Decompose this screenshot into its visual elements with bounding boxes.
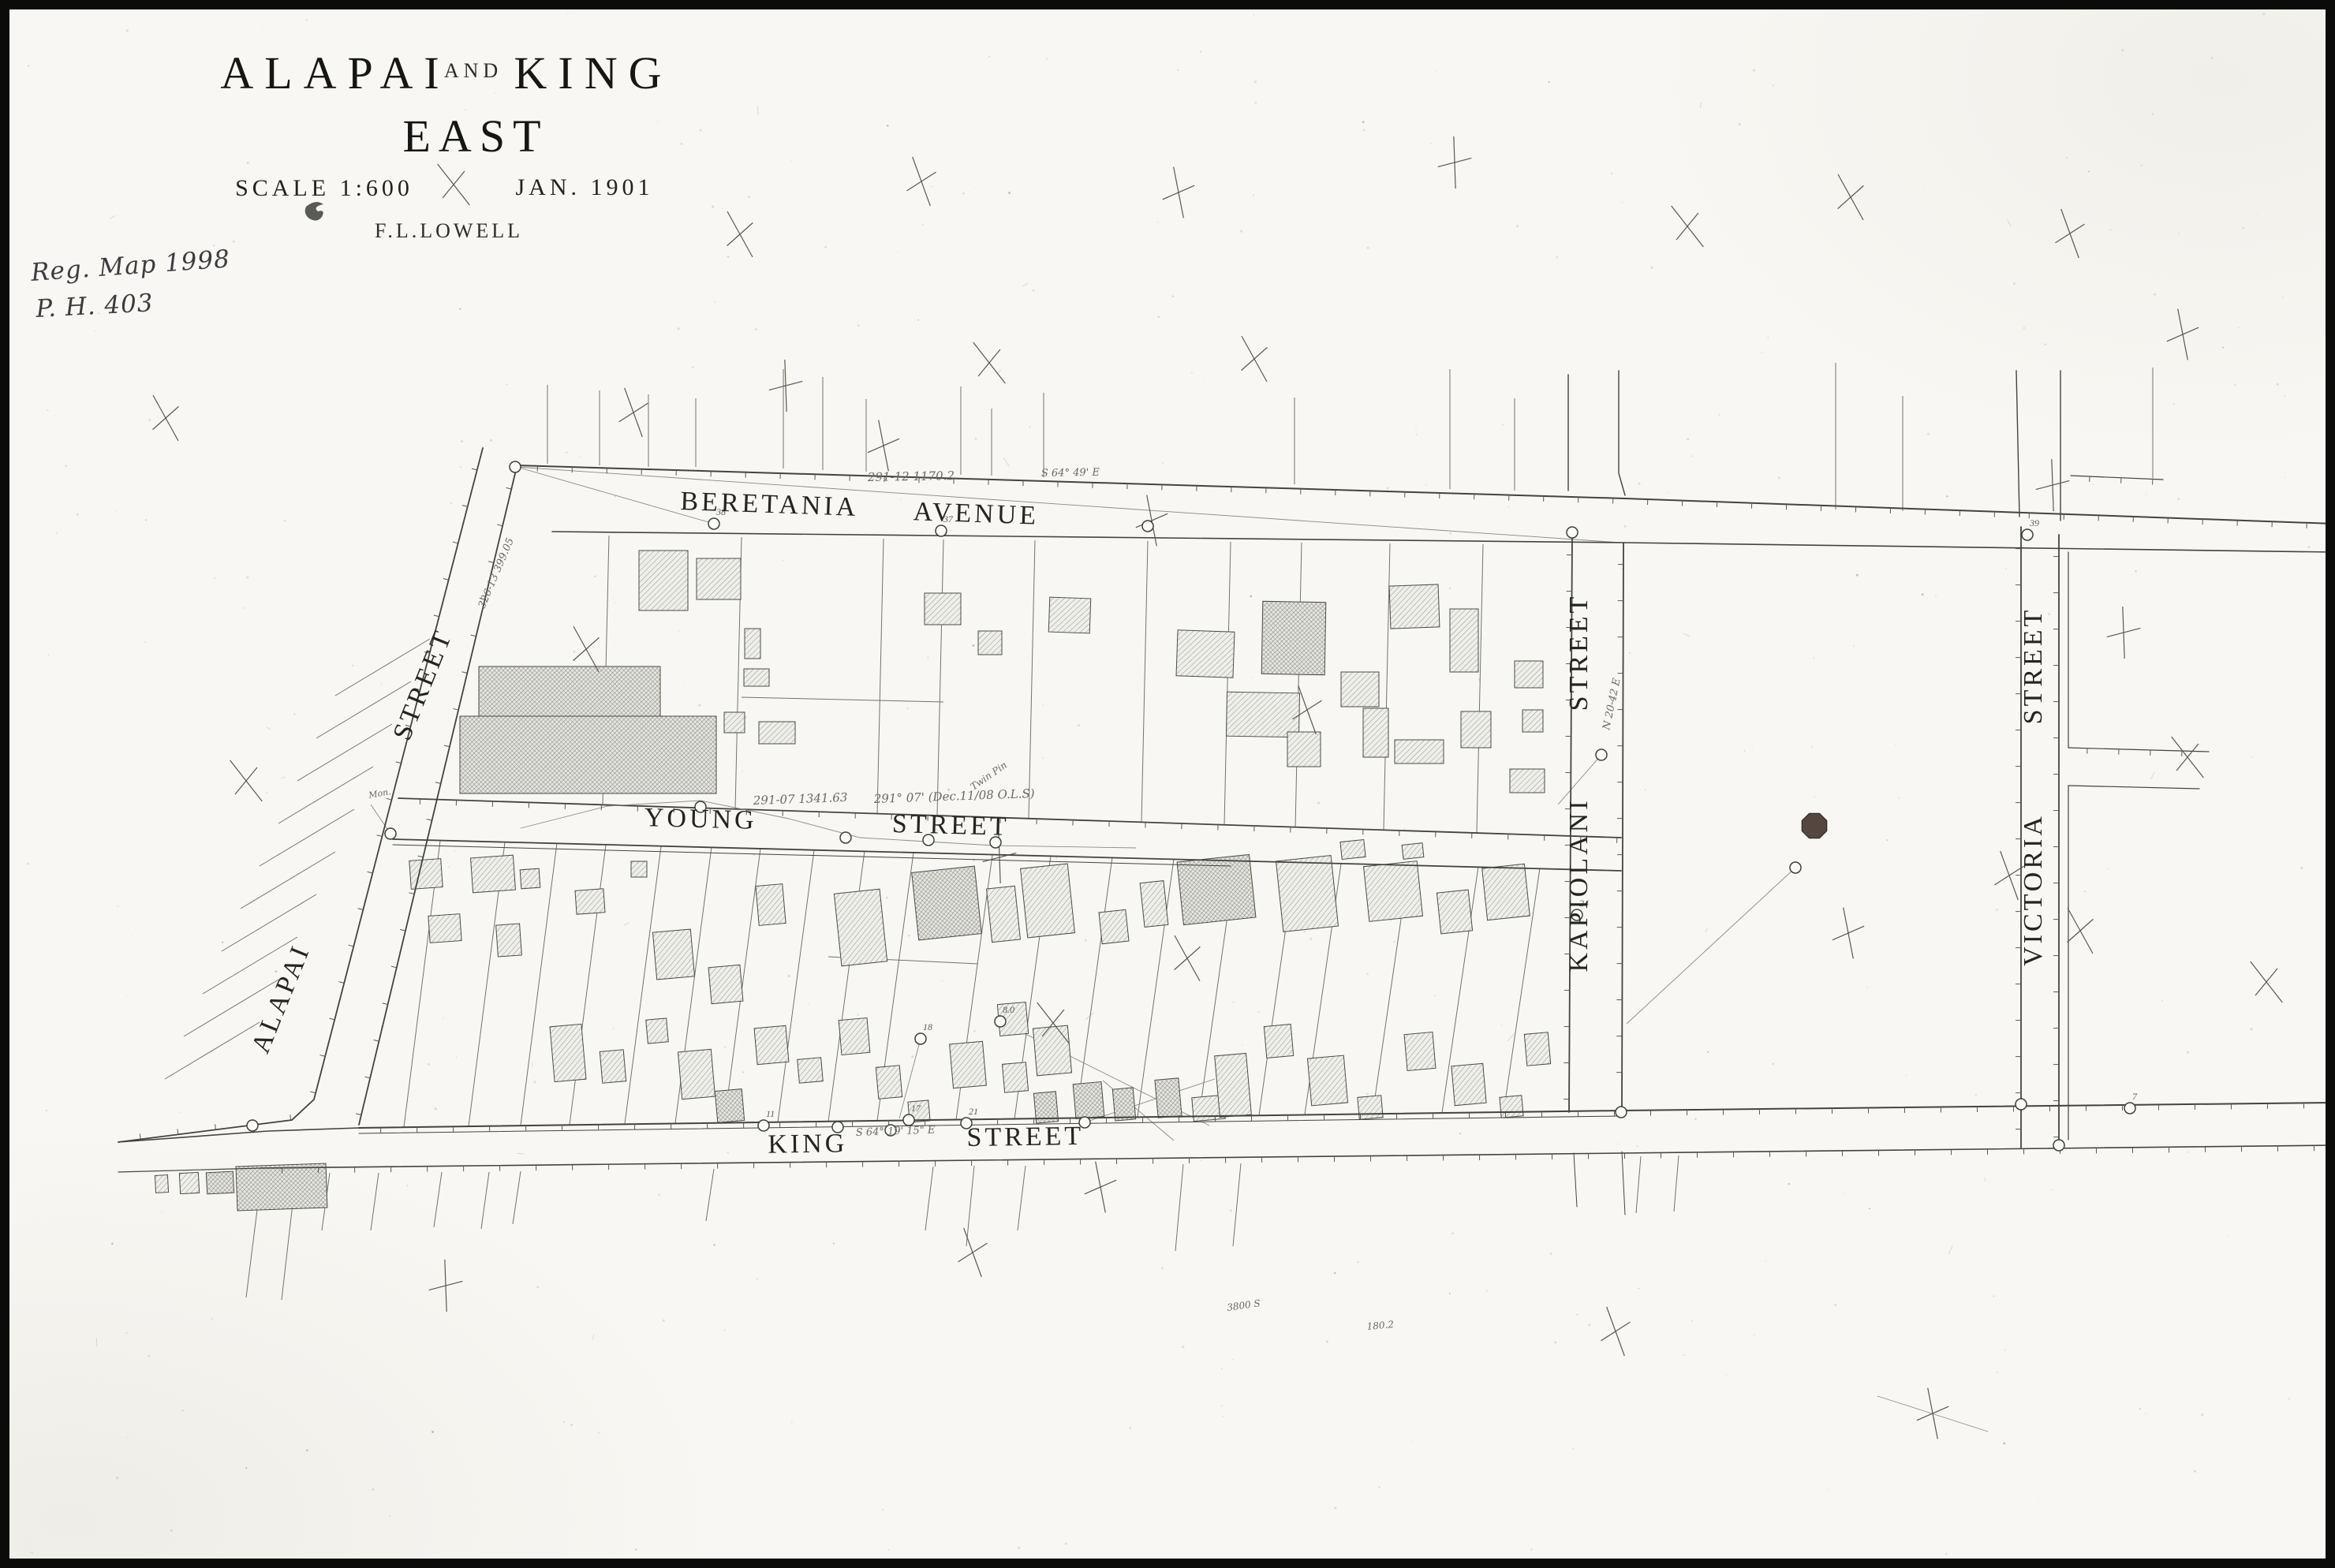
dust-speck (1933, 543, 1934, 544)
dust-speck (1187, 405, 1188, 405)
lot-line (1674, 1155, 1679, 1211)
survey-annotation: 3800 S (1226, 1297, 1261, 1313)
survey-tick (471, 635, 476, 637)
dust-speck (1811, 746, 1813, 748)
dust-speck (1638, 483, 1641, 485)
dust-speck (1277, 491, 1278, 491)
dust-speck (1645, 789, 1646, 790)
scan-scratch (592, 1335, 594, 1339)
building-footprint (798, 1058, 824, 1084)
survey-cross-mark (1085, 1162, 1116, 1213)
lot-line (1233, 1163, 1241, 1246)
survey-tick (290, 1114, 291, 1120)
dust-speck (603, 1146, 603, 1147)
dust-speck (454, 628, 455, 629)
survey-point-circle (2053, 1140, 2064, 1151)
survey-cross-mark (573, 626, 600, 672)
dust-speck (1367, 247, 1369, 249)
dust-speck (1667, 492, 1668, 494)
dust-speck (1752, 749, 1753, 750)
dust-speck (2002, 1206, 2003, 1207)
dust-speck (1366, 1092, 1369, 1095)
dust-speck (148, 419, 151, 421)
dust-speck (1588, 1323, 1590, 1326)
dust-speck (266, 792, 267, 793)
dust-speck (1416, 434, 1418, 435)
dust-speck (1650, 267, 1653, 269)
map-title-and: AND (444, 59, 502, 82)
building-footprint (1112, 1088, 1135, 1121)
dust-speck (573, 651, 576, 653)
dust-speck (1305, 269, 1306, 270)
dust-speck (1449, 1293, 1451, 1294)
building-footprint (1276, 856, 1338, 932)
dust-speck (1996, 1372, 1997, 1373)
dust-speck (1744, 750, 1746, 752)
dust-speck (1250, 595, 1252, 597)
survey-point-circle (915, 1033, 926, 1044)
survey-tick (391, 966, 397, 968)
dust-speck (1161, 1267, 1164, 1270)
dust-speck (1797, 397, 1798, 398)
building-footprint (639, 551, 688, 610)
building-footprint (460, 716, 716, 793)
street-line (552, 532, 2333, 552)
dust-speck (911, 1055, 913, 1058)
scan-scratch (267, 727, 271, 730)
survey-point-circle (1596, 749, 1607, 760)
dust-speck (27, 863, 29, 865)
survey-cross-mark (1917, 1388, 1948, 1439)
dust-speck (975, 438, 977, 440)
survey-tick (444, 745, 450, 747)
cross-stroke (573, 637, 600, 660)
dust-speck (594, 575, 596, 577)
dust-speck (1201, 1160, 1201, 1161)
dust-speck (2154, 293, 2156, 296)
building-footprint (1033, 1025, 1071, 1076)
survey-tick (506, 487, 511, 489)
survey-annotation: S 64° 19' 15" E (856, 1124, 936, 1139)
dust-speck (1221, 1406, 1223, 1407)
dust-speck (2238, 327, 2240, 329)
dust-speck (2211, 57, 2214, 59)
survey-point-circle (840, 832, 851, 843)
dust-speck (727, 256, 730, 258)
dust-speck (30, 1551, 32, 1553)
dust-speck (1334, 1506, 1336, 1509)
dust-speck (126, 29, 129, 32)
survey-point-number: 7 (2132, 1091, 2138, 1102)
dust-speck (344, 717, 345, 718)
dust-speck (1761, 352, 1762, 353)
dust-speck (2135, 570, 2137, 572)
survey-cross-mark (2036, 459, 2070, 511)
lot-lines-layer (165, 363, 2153, 1300)
scan-scratch (2151, 771, 2154, 778)
dust-speck (1486, 1290, 1488, 1292)
dust-speck (1042, 757, 1044, 759)
building-footprint (1155, 1078, 1182, 1118)
survey-point-number: 18 (923, 1021, 932, 1032)
scan-scratch (1948, 1245, 1953, 1255)
dust-speck (1869, 1208, 1870, 1209)
dust-speck (1177, 69, 1179, 71)
dust-speck (1530, 1548, 1532, 1550)
dust-speck (1043, 704, 1044, 705)
dust-speck (742, 1071, 745, 1073)
dust-speck (450, 502, 452, 504)
building-footprint (876, 1066, 902, 1099)
dust-speck (372, 1488, 374, 1491)
cross-stroke (1242, 347, 1268, 370)
handwritten-reg-map: Reg. Map 1998 (29, 245, 231, 287)
dust-speck (1223, 1416, 1224, 1417)
scan-scratch (1985, 1178, 1986, 1182)
dust-speck (1425, 484, 1427, 486)
dust-speck (1923, 188, 1924, 189)
handwritten-ph-number: P. H. 403 (35, 289, 155, 323)
cross-stroke (906, 172, 936, 191)
dust-speck (2175, 393, 2176, 394)
octagon-building (1802, 813, 1826, 838)
dust-speck (917, 319, 919, 321)
dust-speck (28, 65, 29, 66)
building-footprint (1482, 864, 1530, 920)
dust-speck (615, 496, 616, 498)
dust-speck (2149, 1387, 2150, 1387)
building-footprint (428, 914, 461, 943)
survey-cross-mark (1601, 1307, 1630, 1356)
lot-line (371, 1173, 379, 1230)
dust-speck (900, 377, 901, 378)
survey-point-number: 17 (911, 1103, 921, 1114)
dust-speck (428, 1063, 430, 1066)
building-footprint (575, 889, 605, 914)
dust-speck (381, 684, 382, 685)
dust-speck (118, 905, 119, 907)
dust-speck (1516, 225, 1519, 227)
lot-line (1076, 857, 1112, 1118)
street-line (393, 845, 1231, 866)
lot-line (1175, 1164, 1183, 1251)
author-label: F.L.LOWELL (375, 219, 523, 242)
dust-speck (1795, 332, 1795, 333)
dust-speck (824, 246, 827, 248)
dust-speck (1474, 1158, 1475, 1159)
dust-speck (1162, 462, 1164, 464)
survey-tick (418, 856, 424, 857)
building-footprint (646, 1018, 669, 1043)
survey-tick (377, 835, 383, 837)
dust-speck (2084, 890, 2086, 892)
dust-speck (690, 1307, 691, 1308)
survey-point-circle (2124, 1103, 2135, 1114)
dust-speck (2222, 347, 2224, 349)
street-line (2071, 476, 2163, 480)
dust-speck (370, 522, 371, 523)
survey-annotation: S 64° 49' E (1041, 467, 1100, 480)
survey-cross-mark (2251, 961, 2283, 1002)
survey-cross-mark (769, 360, 803, 412)
dust-speck (567, 13, 568, 14)
street-line (118, 448, 483, 1142)
survey-tick (140, 1133, 140, 1139)
dust-speck (1726, 1374, 1728, 1376)
dust-speck (2285, 477, 2285, 478)
survey-point-circle (903, 1114, 914, 1126)
lot-line (513, 1171, 521, 1224)
dust-speck (2187, 1051, 2189, 1054)
building-footprint (1510, 769, 1545, 793)
building-footprint (1073, 1082, 1104, 1119)
building-footprint (236, 1163, 327, 1211)
dust-speck (1386, 487, 1388, 490)
dust-speck (2146, 1413, 2146, 1414)
survey-cross-mark (1438, 136, 1472, 189)
dust-speck (1906, 1075, 1907, 1076)
building-footprint (1176, 630, 1235, 678)
building-footprint (1404, 1032, 1436, 1071)
dust-speck (1993, 1295, 1994, 1297)
dust-speck (818, 752, 819, 753)
dust-speck (2146, 494, 2147, 495)
dust-speck (1550, 1253, 1552, 1255)
cross-stroke (727, 222, 753, 245)
dust-speck (450, 1357, 450, 1357)
dust-speck (942, 980, 943, 981)
dust-speck (409, 1205, 409, 1206)
dust-speck (2165, 203, 2166, 203)
street-line (2068, 748, 2209, 752)
dust-speck (506, 384, 507, 385)
survey-cross-mark (153, 395, 179, 441)
street-label-king-street: STREET (966, 1122, 1084, 1152)
dust-speck (888, 1549, 890, 1551)
lot-line (1295, 543, 1302, 827)
dust-speck (993, 164, 994, 165)
dust-speck (170, 1529, 173, 1532)
dust-speck (145, 519, 148, 521)
dust-speck (1362, 625, 1363, 626)
dust-speck (95, 330, 95, 331)
survey-annotation: 291-07 1341.63 (753, 790, 848, 808)
dust-speck (663, 1320, 665, 1322)
dust-speck (722, 207, 723, 209)
dust-speck (449, 977, 450, 978)
dust-speck (1018, 1547, 1020, 1549)
dust-speck (2051, 1189, 2053, 1191)
survey-point-circle (708, 518, 719, 529)
dust-speck (1157, 315, 1160, 318)
dust-speck (1110, 1093, 1111, 1094)
dust-speck (432, 1431, 434, 1433)
survey-tick (374, 1040, 379, 1042)
dust-speck (1430, 143, 1432, 144)
building-footprint (496, 924, 522, 957)
dust-speck (2003, 1442, 2005, 1444)
dust-speck (82, 1503, 83, 1504)
dust-speck (1503, 597, 1504, 598)
dust-speck (886, 699, 887, 700)
dust-speck (245, 1467, 247, 1469)
dust-speck (1549, 81, 1550, 83)
survey-tick (453, 708, 458, 710)
dust-speck (1895, 745, 1896, 745)
survey-tick (453, 542, 458, 543)
survey-tick (387, 798, 392, 800)
dust-speck (1588, 480, 1589, 480)
dust-speck (1474, 114, 1474, 114)
lot-line (434, 1172, 442, 1227)
dust-speck (886, 897, 888, 899)
survey-cross-mark (1833, 908, 1864, 959)
cross-stroke (618, 403, 648, 422)
dust-speck (598, 1432, 600, 1434)
ink-smudge (305, 202, 323, 220)
cross-stroke (2167, 327, 2199, 342)
survey-tick (383, 1003, 388, 1005)
survey-point-circle (247, 1120, 258, 1131)
dust-speck (1610, 54, 1611, 54)
lot-line (570, 845, 606, 1125)
dust-speck (1575, 1054, 1575, 1055)
building-footprint (1021, 864, 1075, 938)
building-footprint (1227, 692, 1300, 737)
dust-speck (1683, 1354, 1684, 1356)
building-footprint (1515, 661, 1543, 688)
building-footprint (1364, 861, 1423, 922)
dust-speck (449, 866, 450, 868)
street-line (118, 1128, 359, 1142)
survey-tick (329, 1018, 334, 1020)
dust-speck (111, 1243, 114, 1245)
building-footprint (759, 722, 795, 744)
dust-speck (1814, 797, 1816, 798)
dust-speck (389, 1515, 390, 1517)
dust-speck (1449, 588, 1451, 589)
dust-speck (2113, 1279, 2114, 1280)
dust-speck (1813, 657, 1814, 659)
cross-stroke (153, 406, 179, 429)
dust-speck (1621, 568, 1623, 569)
street-line (2016, 371, 2019, 517)
dust-speck (1008, 192, 1011, 194)
street-label-kapiolani: KAPIOLANI (1564, 797, 1593, 972)
dust-speck (791, 1421, 792, 1422)
street-line (260, 1145, 2333, 1168)
dust-speck (1834, 1304, 1836, 1306)
dust-speck (460, 466, 461, 468)
dust-speck (1033, 289, 1035, 292)
dust-speck (698, 704, 700, 706)
building-footprint (206, 1171, 233, 1194)
building-footprint (1402, 843, 1424, 860)
dust-speck (1410, 1441, 1411, 1442)
dust-speck (2088, 170, 2090, 172)
street-line (1574, 1153, 1577, 1207)
dust-speck (454, 850, 455, 851)
dust-speck (461, 440, 463, 442)
dust-speck (1029, 426, 1030, 427)
dust-speck (635, 1548, 637, 1551)
dust-speck (1718, 883, 1719, 883)
building-footprint (678, 1049, 715, 1099)
survey-tick (396, 762, 402, 763)
dust-speck (1743, 157, 1743, 158)
dust-speck (406, 1185, 408, 1186)
lot-line (966, 1166, 974, 1246)
dust-speck (681, 143, 683, 145)
dust-speck (1753, 69, 1755, 72)
dust-speck (541, 1084, 542, 1085)
dust-speck (32, 1174, 32, 1175)
dust-speck (126, 995, 127, 995)
dust-speck (1922, 593, 1924, 595)
sheet-border (5, 5, 2330, 1563)
building-footprint (987, 886, 1021, 942)
dust-speck (1739, 123, 1741, 125)
lot-line (165, 1022, 260, 1079)
dust-speck (1650, 1013, 1651, 1014)
survey-tick (358, 909, 364, 910)
dust-speck (1856, 574, 1859, 577)
dust-speck (532, 13, 532, 13)
dust-speck (962, 192, 965, 195)
scan-scratch (624, 923, 630, 926)
lot-line (1018, 1166, 1026, 1230)
dust-speck (927, 657, 928, 659)
dust-speck (495, 92, 495, 93)
dust-speck (757, 1278, 758, 1279)
dust-speck (2284, 395, 2285, 397)
building-footprint (1048, 597, 1091, 633)
survey-tick (319, 1055, 325, 1057)
dust-speck (1773, 84, 1774, 86)
lot-line (222, 894, 316, 951)
survey-cross-mark (958, 1228, 987, 1277)
dust-speck (2085, 638, 2086, 639)
survey-tick (434, 615, 439, 617)
building-footprint (155, 1175, 168, 1193)
dust-speck (1394, 941, 1395, 943)
lot-line (278, 767, 373, 823)
scan-scratch (1683, 633, 1690, 636)
dust-speck (1159, 325, 1160, 326)
date-label: JAN. 1901 (515, 174, 653, 200)
dust-speck (788, 975, 790, 977)
building-footprint (697, 558, 741, 599)
building-footprint (925, 593, 961, 625)
dust-speck (1304, 931, 1306, 932)
building-footprint (912, 866, 982, 940)
dust-speck (880, 1233, 880, 1234)
dust-speck (1624, 525, 1627, 528)
dust-speck (1974, 552, 1974, 553)
dust-speck (1255, 102, 1257, 103)
building-footprint (1215, 1053, 1252, 1117)
survey-tick (310, 1092, 316, 1093)
dust-speck (1935, 595, 1937, 597)
dust-speck (570, 1424, 573, 1426)
dust-speck (2107, 868, 2109, 870)
map-title-east: EAST (403, 110, 549, 162)
dust-speck (1172, 295, 1175, 297)
dust-speck (1747, 211, 1747, 211)
dust-speck (1718, 414, 1720, 416)
dust-speck (330, 524, 331, 525)
dust-speck (534, 1081, 536, 1083)
